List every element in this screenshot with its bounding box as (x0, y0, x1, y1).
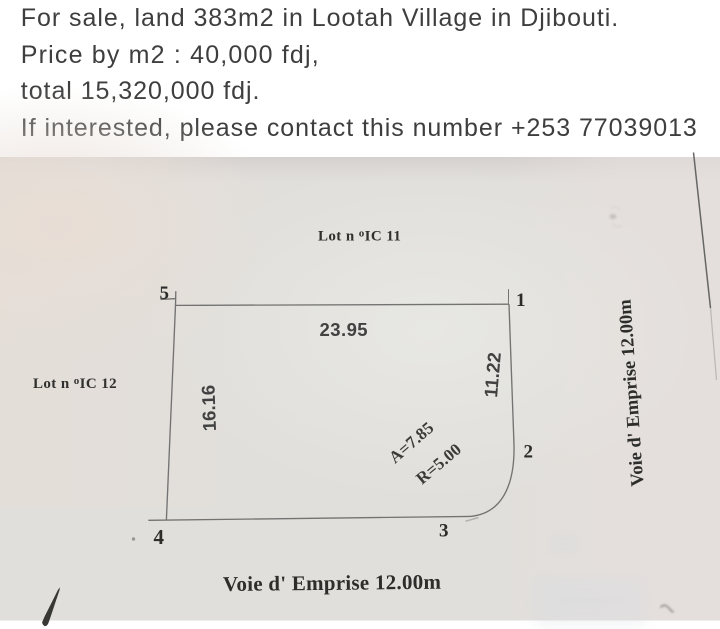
svg-text:1: 1 (516, 290, 526, 311)
svg-text:2: 2 (524, 442, 534, 463)
svg-text:11.22: 11.22 (480, 351, 505, 398)
svg-text:3: 3 (439, 521, 449, 542)
svg-text:5: 5 (160, 283, 170, 304)
svg-text:23.95: 23.95 (320, 319, 369, 340)
svg-text:16.16: 16.16 (197, 385, 220, 432)
svg-text:Voie d' Emprise 12.00m: Voie d' Emprise 12.00m (223, 570, 442, 596)
svg-text:4: 4 (154, 525, 165, 549)
